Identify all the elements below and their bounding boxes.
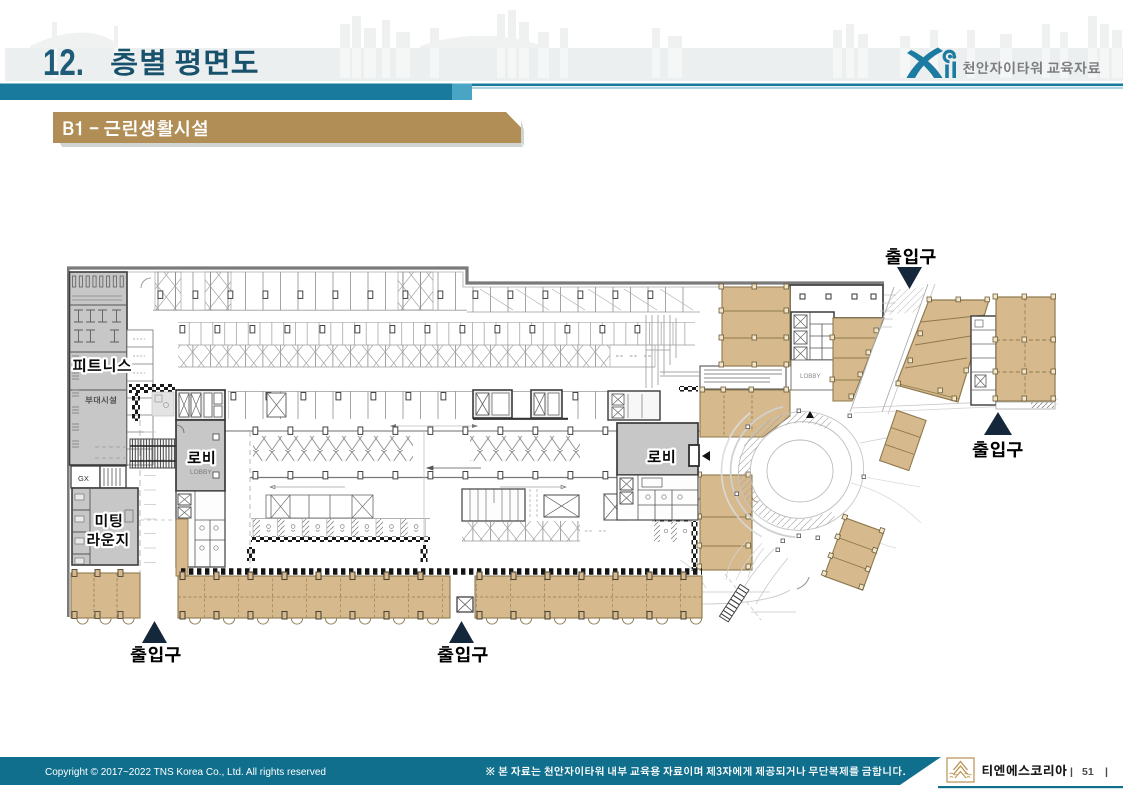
- svg-text:|: |: [1105, 766, 1108, 778]
- svg-text:|: |: [1070, 766, 1073, 778]
- svg-text:12.: 12.: [43, 42, 84, 83]
- svg-text:GX: GX: [78, 474, 89, 483]
- svg-text:LOBBY: LOBBY: [800, 373, 821, 380]
- svg-text:Copyright © 2017~2022 TNS Kore: Copyright © 2017~2022 TNS Korea Co., Ltd…: [45, 767, 326, 778]
- svg-text:51: 51: [1082, 766, 1094, 778]
- svg-text:LOBBY: LOBBY: [190, 469, 212, 476]
